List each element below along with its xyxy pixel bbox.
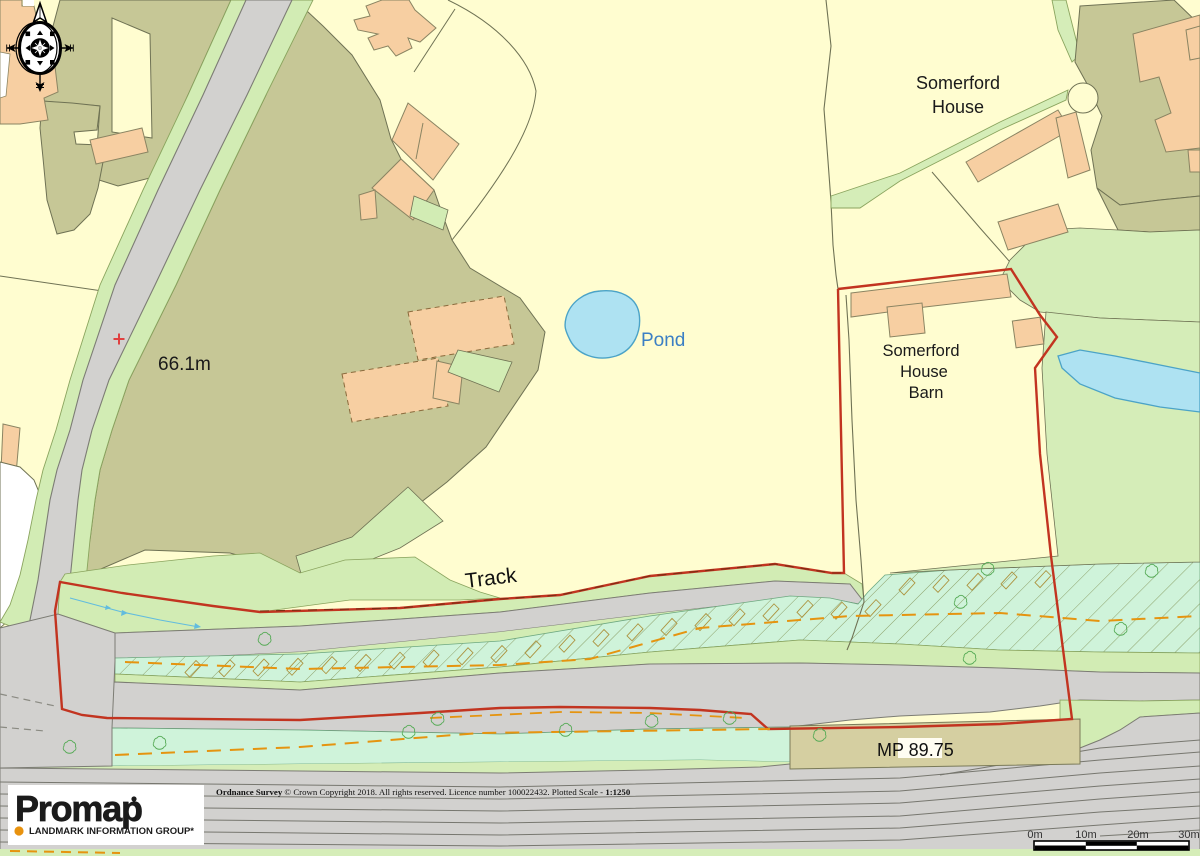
svg-text:LANDMARK INFORMATION GROUP*: LANDMARK INFORMATION GROUP*: [29, 826, 194, 837]
svg-text:Pond: Pond: [641, 330, 685, 351]
svg-text:MP 89.75: MP 89.75: [877, 740, 954, 760]
svg-text:House: House: [900, 363, 948, 381]
svg-text:House: House: [932, 97, 984, 117]
svg-text:66.1m: 66.1m: [158, 354, 211, 375]
svg-text:20m: 20m: [1127, 829, 1148, 841]
svg-text:Barn: Barn: [909, 384, 944, 402]
svg-text:Promap: Promap: [15, 788, 142, 829]
svg-text:10m: 10m: [1075, 829, 1096, 841]
svg-text:Ordnance Survey © Crown Copyri: Ordnance Survey © Crown Copyright 2018. …: [216, 787, 631, 797]
svg-text:30m: 30m: [1178, 829, 1199, 841]
svg-text:0m: 0m: [1027, 829, 1042, 841]
svg-text:Somerford: Somerford: [882, 342, 959, 360]
svg-text:Somerford: Somerford: [916, 73, 1000, 93]
